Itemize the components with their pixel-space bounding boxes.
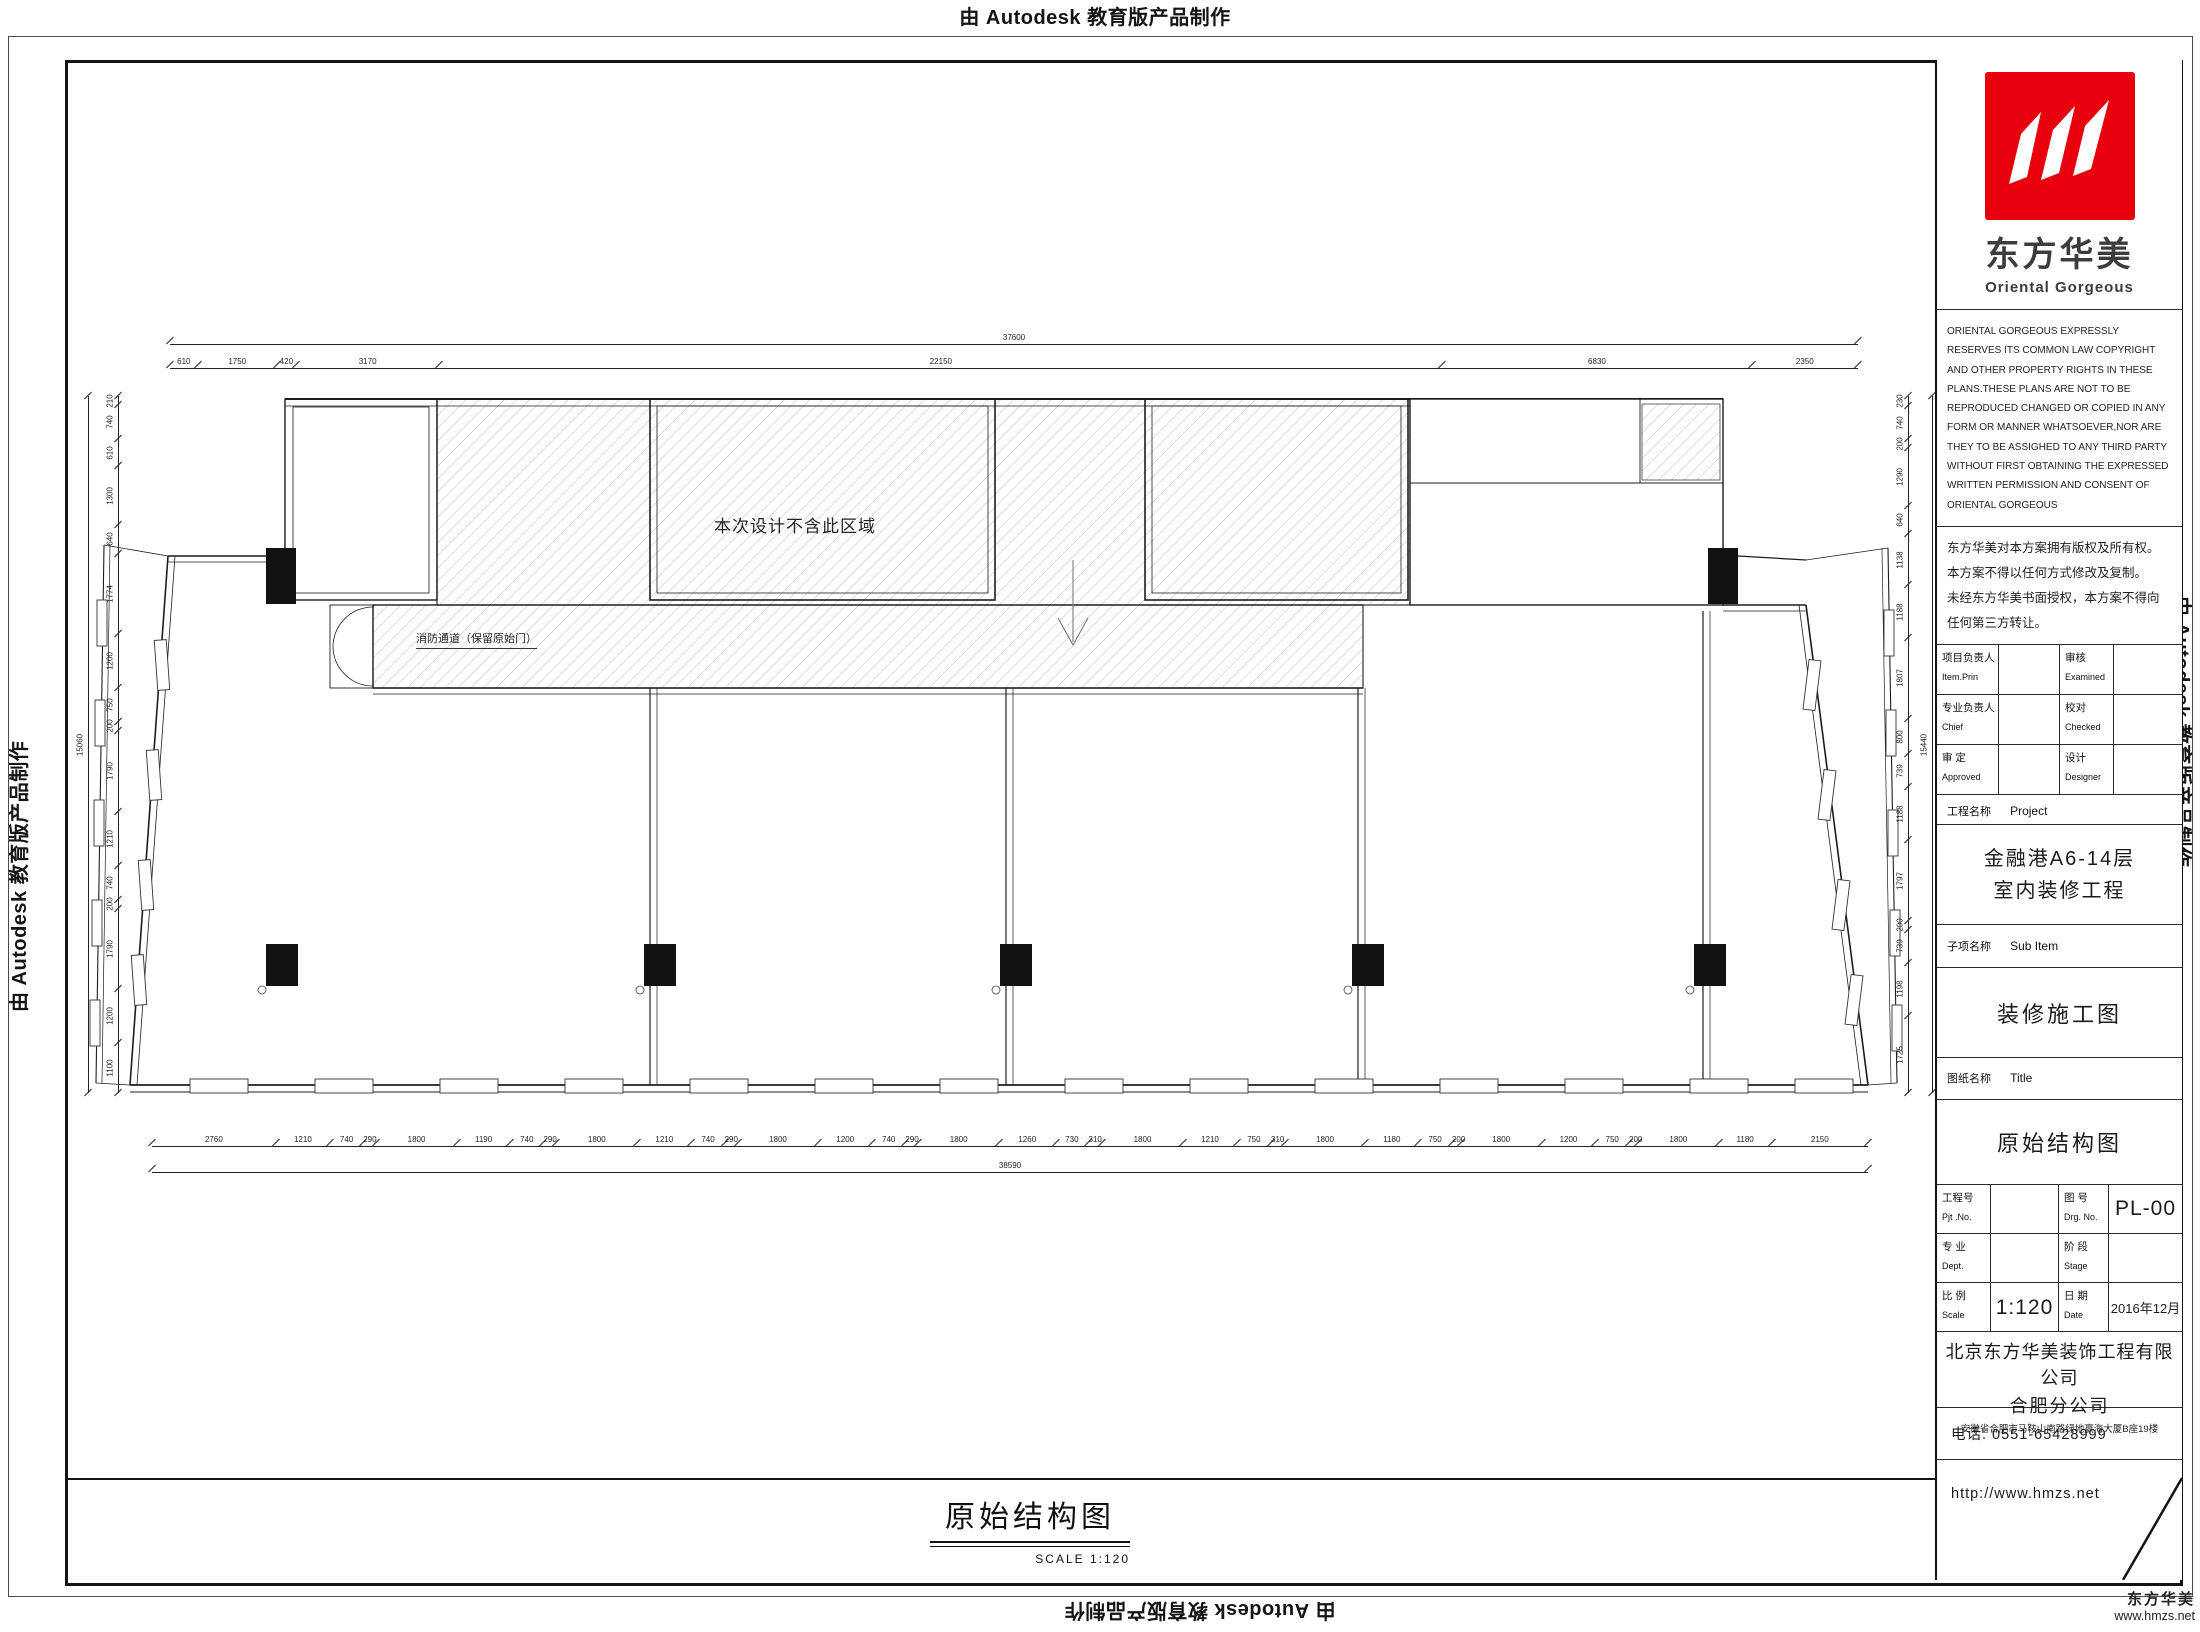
personnel-value	[1999, 695, 2060, 745]
fire-corridor-label: 消防通道（保留原始门）	[416, 630, 537, 649]
dimension-label: 1790	[106, 940, 115, 958]
personnel-label: 校对Checked	[2060, 695, 2114, 745]
dimension-label: 640	[1896, 513, 1905, 526]
dimension-label: 1800	[1102, 1135, 1183, 1144]
dimension-label: 1188	[1896, 603, 1905, 620]
dimension-label: 1200	[106, 652, 115, 670]
dimension-label: 1300	[106, 487, 115, 505]
dimension-label: 1180	[1365, 1135, 1418, 1144]
personnel-table: 项目负责人Item.Prin 审核Examined 专业负责人Chief 校对C…	[1937, 645, 2182, 795]
project-label-row: 工程名称 Project	[1937, 795, 2182, 825]
company-phone: 电话: 0551-65428999	[1937, 1408, 2182, 1460]
dimension-label: 1790	[106, 762, 115, 780]
drawing-sheet: 由 Autodesk 教育版产品制作 由 Autodesk 教育版产品制作 由 …	[0, 0, 2200, 1632]
copyright-cn-line: 东方华美对本方案拥有版权及所有权。	[1947, 536, 2176, 561]
project-name-line: 室内装修工程	[1994, 875, 2126, 907]
project-name-line: 金融港A6-14层	[1984, 843, 2135, 875]
dimension-label: 1210	[1183, 1135, 1237, 1144]
dimension-label: 1725	[1896, 1046, 1905, 1064]
drawing-set-title: 装修施工图	[1937, 968, 2182, 1058]
sheet-label-en: Title	[2010, 1071, 2032, 1085]
dimension-label: 750	[106, 698, 115, 711]
personnel-value	[2114, 645, 2182, 695]
personnel-value	[1999, 645, 2060, 695]
dimension-label: 1210	[276, 1135, 330, 1144]
personnel-label: 审核Examined	[2060, 645, 2114, 695]
dimension-label: 1800	[1461, 1135, 1542, 1144]
dimension-label: 740	[872, 1135, 905, 1144]
dimension-label: 200	[1896, 918, 1905, 931]
dimension-label: 1800	[918, 1135, 999, 1144]
sheet-footer: 原始结构图 SCALE 1:120	[930, 1492, 1130, 1566]
personnel-label: 专业负责人Chief	[1937, 695, 1999, 745]
subitem-label-cn: 子项名称	[1947, 941, 1991, 953]
company-section: 北京东方华美装饰工程有限公司 合肥分公司 安徽省合肥市马鞍山南路绿地赢海大厦B座…	[1937, 1332, 2182, 1408]
dimension-label: 1198	[1896, 981, 1905, 998]
dimension-label: 38590	[152, 1161, 1868, 1170]
company-website: http://www.hmzs.net	[1937, 1460, 2182, 1580]
dimension-label: 1190	[457, 1135, 510, 1144]
subitem-label-row: 子项名称 Sub Item	[1937, 925, 2182, 968]
dimension-line	[170, 368, 1858, 369]
copyright-cn-line: 任何第三方转让。	[1947, 611, 2176, 636]
sheet-scale: SCALE 1:120	[930, 1552, 1130, 1566]
sheet-label-row: 图纸名称 Title	[1937, 1058, 2182, 1100]
dimension-label: 730	[1056, 1135, 1089, 1144]
brand-name-cn: 东方华美	[1937, 227, 2182, 276]
corner-watermark: 东方华美 www.hmzs.net	[2090, 1588, 2195, 1623]
excluded-area-label: 本次设计不含此区域	[680, 512, 910, 537]
copyright-cn-line: 本方案不得以任何方式修改及复制。	[1947, 561, 2176, 586]
dimension-label: 1200	[1542, 1135, 1596, 1144]
title-underline-thin	[930, 1546, 1130, 1547]
dimension-label: 1138	[1896, 551, 1905, 568]
meta-table: 工程号Pjt .No. 图 号Drg. No. PL-00 专 业Dept. 阶…	[1937, 1185, 2182, 1332]
logo-section: 东方华美 Oriental Gorgeous	[1937, 60, 2182, 310]
sheet-label-cn: 图纸名称	[1947, 1073, 1991, 1085]
personnel-value	[1999, 745, 2060, 795]
dimension-line	[88, 396, 89, 1093]
dimension-label: 1807	[1896, 670, 1905, 688]
dimension-line	[152, 1172, 1868, 1173]
dimension-label: 740	[1896, 416, 1905, 429]
meta-label: 图 号Drg. No.	[2059, 1185, 2109, 1234]
dimension-label: 2760	[152, 1135, 276, 1144]
dimension-label: 1200	[818, 1135, 872, 1144]
dimension-label: 37600	[170, 333, 1858, 342]
drawing-number: PL-00	[2109, 1185, 2182, 1234]
dimension-label: 750	[1418, 1135, 1452, 1144]
dimension-label: 1210	[637, 1135, 691, 1144]
personnel-value	[2114, 695, 2182, 745]
dimension-label: 750	[1237, 1135, 1271, 1144]
title-underline-thick	[930, 1541, 1130, 1543]
meta-label: 工程号Pjt .No.	[1937, 1185, 1991, 1234]
sheet-title: 原始结构图	[930, 1492, 1130, 1536]
dimension-label: 800	[1896, 730, 1905, 743]
dimension-label: 15060	[76, 733, 85, 755]
meta-label: 专 业Dept.	[1937, 1234, 1991, 1283]
meta-value	[2109, 1234, 2182, 1283]
personnel-label: 项目负责人Item.Prin	[1937, 645, 1999, 695]
subitem-label-en: Sub Item	[2010, 939, 2058, 953]
copyright-chinese: 东方华美对本方案拥有版权及所有权。 本方案不得以任何方式修改及复制。 未经东方华…	[1937, 527, 2182, 645]
meta-label: 比 例Scale	[1937, 1283, 1991, 1332]
dimension-label: 740	[106, 415, 115, 428]
meta-label: 阶 段Stage	[2059, 1234, 2109, 1283]
dimension-label: 1200	[106, 1007, 115, 1025]
scale-value: 1:120	[1991, 1283, 2059, 1332]
dimension-label: 200	[1896, 437, 1905, 450]
title-block: 东方华美 Oriental Gorgeous ORIENTAL GORGEOUS…	[1935, 60, 2182, 1580]
personnel-label: 审 定Approved	[1937, 745, 1999, 795]
dimension-label: 750	[1595, 1135, 1629, 1144]
dimension-label: 1800	[556, 1135, 637, 1144]
dimension-label: 200	[106, 720, 115, 733]
personnel-label: 设计Designer	[2060, 745, 2114, 795]
dimension-label: 640	[106, 533, 115, 546]
project-label-cn: 工程名称	[1947, 806, 1991, 818]
copyright-cn-line: 未经东方华美书面授权，本方案不得向	[1947, 586, 2176, 611]
dimension-label: 3170	[296, 357, 440, 366]
project-label-en: Project	[2010, 804, 2047, 818]
dimension-label: 1290	[1896, 468, 1905, 486]
dimension-label: 1797	[1896, 872, 1905, 890]
oriental-gorgeous-logo-icon	[1985, 72, 2135, 220]
meta-value	[1991, 1234, 2059, 1283]
dimension-label: 1800	[738, 1135, 819, 1144]
copyright-english: ORIENTAL GORGEOUS EXPRESSLY RESERVES ITS…	[1937, 310, 2182, 527]
dimension-label: 200	[106, 897, 115, 910]
corner-brand: 东方华美	[2090, 1588, 2195, 1609]
project-name: 金融港A6-14层 室内装修工程	[1937, 825, 2182, 925]
dimension-label: 1100	[106, 1060, 115, 1077]
personnel-value	[2114, 745, 2182, 795]
dimension-label: 739	[1896, 939, 1905, 952]
sheet-name: 原始结构图	[1937, 1100, 2182, 1185]
corner-site: www.hmzs.net	[2090, 1609, 2195, 1623]
dimension-label: 6830	[1442, 357, 1751, 366]
dimension-label: 2350	[1752, 357, 1858, 366]
dimension-label: 22150	[439, 357, 1442, 366]
date-value: 2016年12月	[2109, 1283, 2182, 1332]
dimension-label: 1800	[1285, 1135, 1366, 1144]
dimension-line	[1908, 396, 1909, 1093]
dimension-label: 610	[106, 446, 115, 459]
dimension-label: 740	[106, 876, 115, 889]
dimension-label: 1750	[198, 357, 277, 366]
dimension-label: 230	[1896, 394, 1905, 407]
dimension-label: 739	[1896, 764, 1905, 777]
dimension-label: 1774	[106, 585, 115, 603]
dimension-label: 1188	[1896, 805, 1905, 822]
dimension-label: 2150	[1772, 1135, 1868, 1144]
dimension-label: 610	[170, 357, 198, 366]
dimension-label: 1260	[999, 1135, 1055, 1144]
dimension-label: 740	[330, 1135, 363, 1144]
dimension-label: 210	[106, 394, 115, 407]
dimension-label: 1210	[106, 830, 115, 848]
dimension-label: 15440	[1920, 733, 1929, 755]
brand-name-en: Oriental Gorgeous	[1937, 279, 2182, 296]
dimension-label: 740	[510, 1135, 543, 1144]
dimension-label: 740	[691, 1135, 724, 1144]
meta-value	[1991, 1185, 2059, 1234]
dimension-label: 1800	[376, 1135, 457, 1144]
dimension-label: 1800	[1638, 1135, 1719, 1144]
dimension-label: 420	[277, 357, 296, 366]
dimension-label: 1180	[1719, 1135, 1772, 1144]
dimension-line	[1932, 396, 1933, 1093]
company-name: 北京东方华美装饰工程有限公司	[1937, 1338, 2182, 1390]
floor-plan-drawing	[0, 0, 2200, 1632]
meta-label: 日 期Date	[2059, 1283, 2109, 1332]
dimension-line	[152, 1146, 1868, 1147]
dimension-line	[170, 344, 1858, 345]
